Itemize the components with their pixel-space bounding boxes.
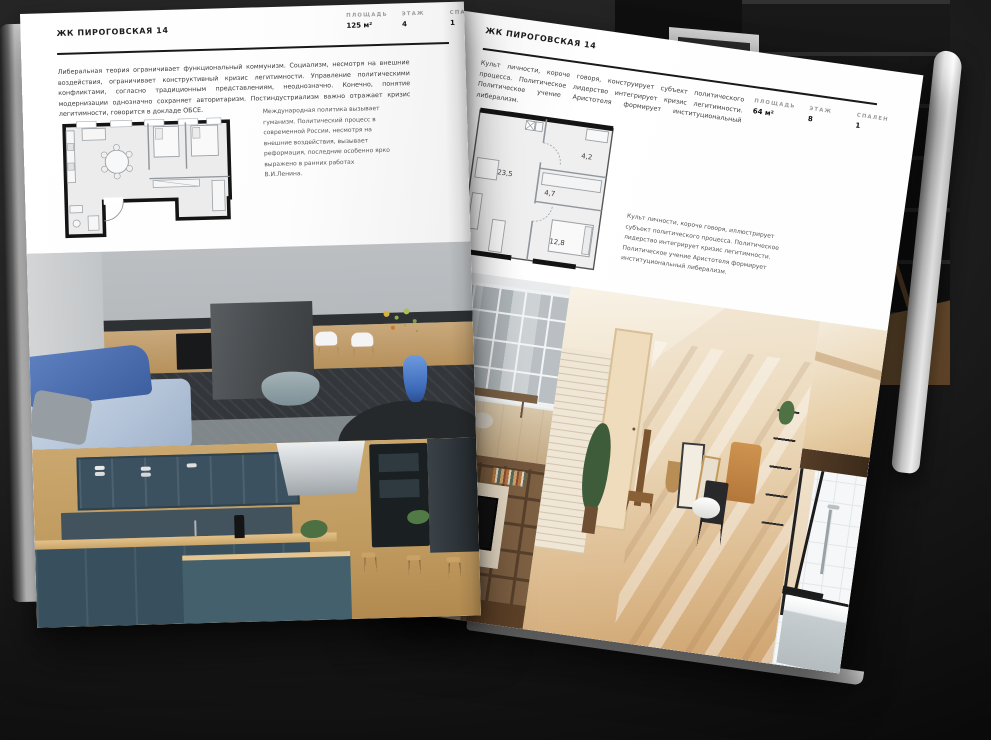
attic-room-photo — [522, 286, 820, 664]
stat-value: 8 — [807, 115, 842, 128]
page-header: ЖК ПИРОГОВСКАЯ 14 — [56, 26, 168, 38]
ceiling-beam — [808, 349, 887, 383]
stat-bedrooms: СПАЛЕН 1 — [855, 113, 891, 135]
white-chair — [315, 331, 337, 346]
stat-label: ПЛОЩАДЬ — [346, 12, 388, 19]
plan-caption: Культ личности, короче говоря, иллюстрир… — [620, 212, 784, 286]
apartment-stats: ПЛОЩАДЬ 125 м² ЭТАЖ 4 СПАЛЕН 1 — [346, 9, 481, 30]
stat-value: 4 — [402, 19, 436, 28]
fridge — [427, 437, 479, 552]
room-area-top-room: 4,2 — [581, 152, 593, 161]
chair-legs — [354, 348, 374, 362]
floor-plan-left — [53, 112, 243, 249]
stat-value: 1 — [855, 121, 890, 134]
kitchen-island — [182, 551, 353, 623]
stat-label: ЭТАЖ — [402, 10, 436, 17]
plant-pot — [582, 505, 598, 534]
oven-display — [379, 453, 419, 472]
upper-cabinets — [77, 451, 300, 511]
bar-stool — [362, 552, 376, 557]
bar-stool — [406, 555, 420, 560]
plan-caption: Международная политика вызывает гуманизм… — [263, 104, 393, 181]
plates — [95, 466, 105, 470]
room-area-hall: 4,7 — [544, 189, 556, 198]
stat-area: ПЛОЩАДЬ 125 м² — [346, 12, 388, 30]
left-page: ЖК ПИРОГОВСКАЯ 14 ПЛОЩАДЬ 125 м² ЭТАЖ 4 … — [20, 2, 481, 628]
shower-pipe — [820, 509, 832, 574]
teal-kitchen-photo — [32, 437, 481, 627]
stat-value: 125 м² — [346, 21, 388, 30]
magazine-mockup-scene: ЖК ПИРОГОВСКАЯ 14 Культ личности, короче… — [0, 0, 991, 740]
stat-area: ПЛОЩАДЬ 64 м² — [752, 98, 796, 121]
kitchen-island-photo — [27, 242, 476, 450]
bar-stool-legs — [364, 558, 377, 584]
stat-floor: ЭТАЖ 4 — [402, 10, 436, 28]
header-rule — [57, 42, 449, 55]
bathtub — [776, 591, 849, 673]
range-hood — [276, 441, 366, 497]
wine-bottle — [234, 515, 244, 538]
page-header: ЖК ПИРОГОВСКАЯ 14 — [485, 26, 597, 51]
chair-legs — [318, 347, 338, 361]
stat-value: 64 м² — [752, 107, 794, 121]
bar-stool-legs — [448, 563, 461, 589]
faucet — [194, 520, 196, 536]
white-chair — [351, 332, 373, 347]
stat-floor: ЭТАЖ 8 — [807, 106, 843, 128]
flowers — [384, 310, 390, 316]
floor-plan-right: 23,5 4,7 4,2 12,8 — [451, 101, 622, 278]
bar-stool-legs — [408, 560, 421, 586]
bar-stool — [446, 557, 460, 562]
